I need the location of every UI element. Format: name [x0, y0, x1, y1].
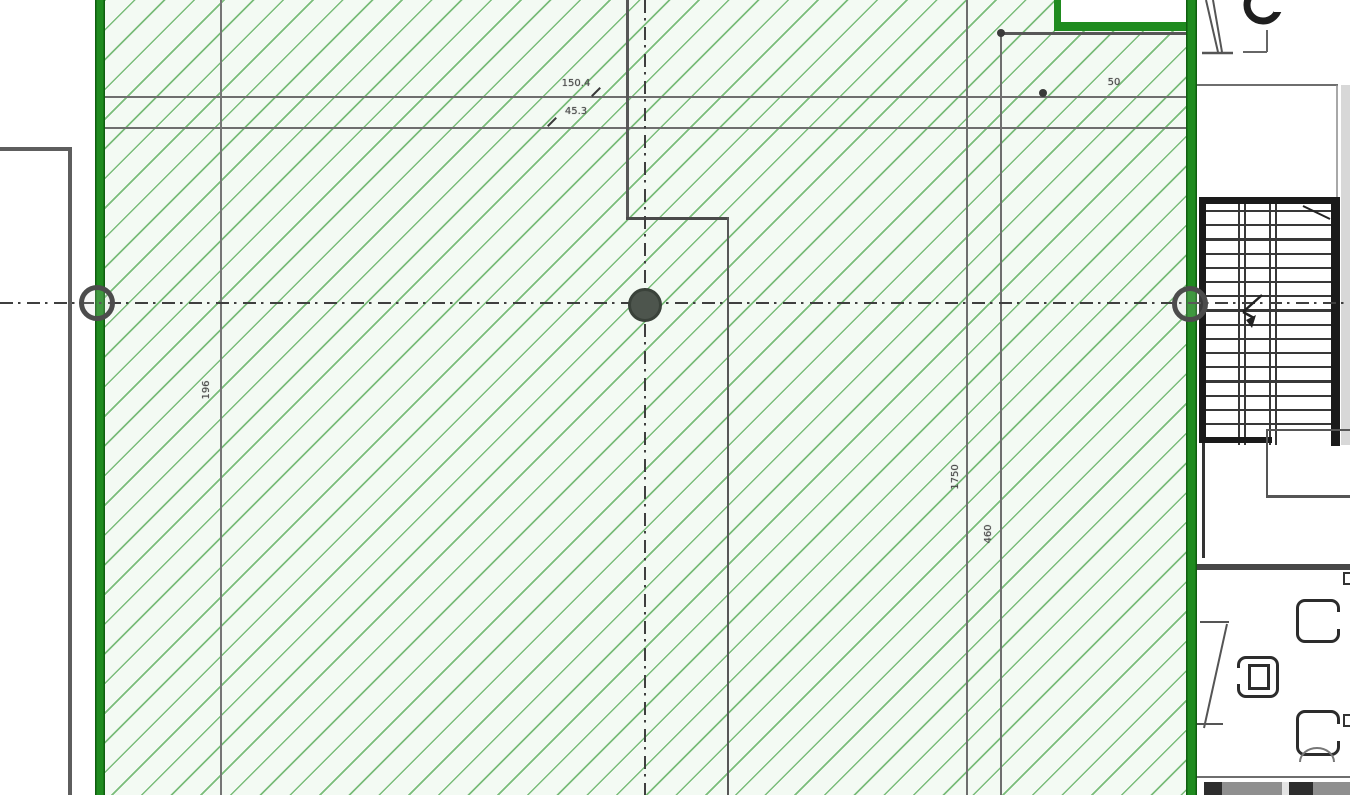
door-swing-symbol	[1197, 622, 1229, 728]
stair-stringer-b2	[1275, 204, 1277, 445]
chair-middle-opening	[1234, 668, 1242, 684]
bottom-wall-band-dark-a	[1204, 782, 1222, 795]
grid-bubble-left	[79, 285, 115, 321]
grid-bubble-right	[1172, 286, 1208, 322]
dimension-node-a	[997, 29, 1005, 37]
wall-line-left-margin-v	[68, 147, 72, 795]
dimension-node-b	[1039, 89, 1047, 97]
grid-centerline-horizontal	[0, 302, 1350, 304]
interior-line-b-jog	[626, 217, 729, 220]
chair-top-opening	[1337, 612, 1346, 629]
stair-right-wall	[1331, 197, 1340, 446]
stair-stringer-a2	[1244, 204, 1246, 445]
grid-centerline-vertical	[644, 0, 646, 795]
stair-stringer-b1	[1269, 204, 1271, 445]
dimension-line-top-right	[1000, 32, 1186, 35]
floor-plan-canvas: 150.4 45.3 50 196 1750 460	[0, 0, 1350, 795]
stair-left-wall	[1199, 197, 1206, 443]
green-wall-right	[1186, 0, 1197, 795]
interior-line-a	[220, 0, 222, 795]
interior-line-c	[966, 0, 968, 795]
right-corridor-line	[1197, 84, 1338, 86]
section-marker-icon	[1247, 0, 1279, 21]
dimension-text-right-offset: 50	[1098, 77, 1130, 89]
bottom-wall-band	[1204, 782, 1350, 795]
partition-wall	[1197, 564, 1350, 570]
wall-line-left-margin-h	[0, 147, 72, 151]
bottom-wall-band-gap	[1282, 782, 1289, 795]
stair-top-wall	[1204, 197, 1340, 204]
dimension-text-col-b: 460	[983, 519, 995, 549]
dimension-text-left-vertical: 196	[201, 375, 213, 405]
door-jamb-top	[1202, 0, 1267, 53]
dimension-text-top-primary: 150.4	[552, 78, 600, 90]
green-notch-band	[1054, 22, 1186, 31]
stair-shaft-strip	[1341, 85, 1350, 445]
lower-room-top	[1266, 429, 1350, 431]
bottom-wall-band-dark-b	[1289, 782, 1313, 795]
lower-room-bottom	[1266, 495, 1350, 498]
dimension-text-top-secondary: 45.3	[554, 106, 598, 118]
stair-left-wall-extension	[1202, 443, 1205, 558]
edge-fixture-lower	[1343, 714, 1350, 727]
edge-fixture-upper	[1343, 572, 1350, 585]
dimension-text-col-a: 1750	[950, 459, 962, 495]
interior-line-b-upper	[626, 0, 629, 219]
lower-room-left	[1266, 429, 1268, 497]
green-wall-left	[95, 0, 105, 795]
stair-stringer-a1	[1238, 204, 1240, 445]
grid-bubble-center	[628, 288, 662, 322]
wall-notch-recess	[1061, 0, 1186, 23]
chair-symbol-top	[1296, 599, 1340, 643]
bottom-wall-line	[1197, 776, 1350, 778]
chair-symbol-bottom	[1296, 710, 1340, 756]
stair-bottom-wall	[1202, 437, 1272, 443]
desk-symbol	[1248, 664, 1270, 690]
interior-line-d	[1000, 32, 1002, 795]
